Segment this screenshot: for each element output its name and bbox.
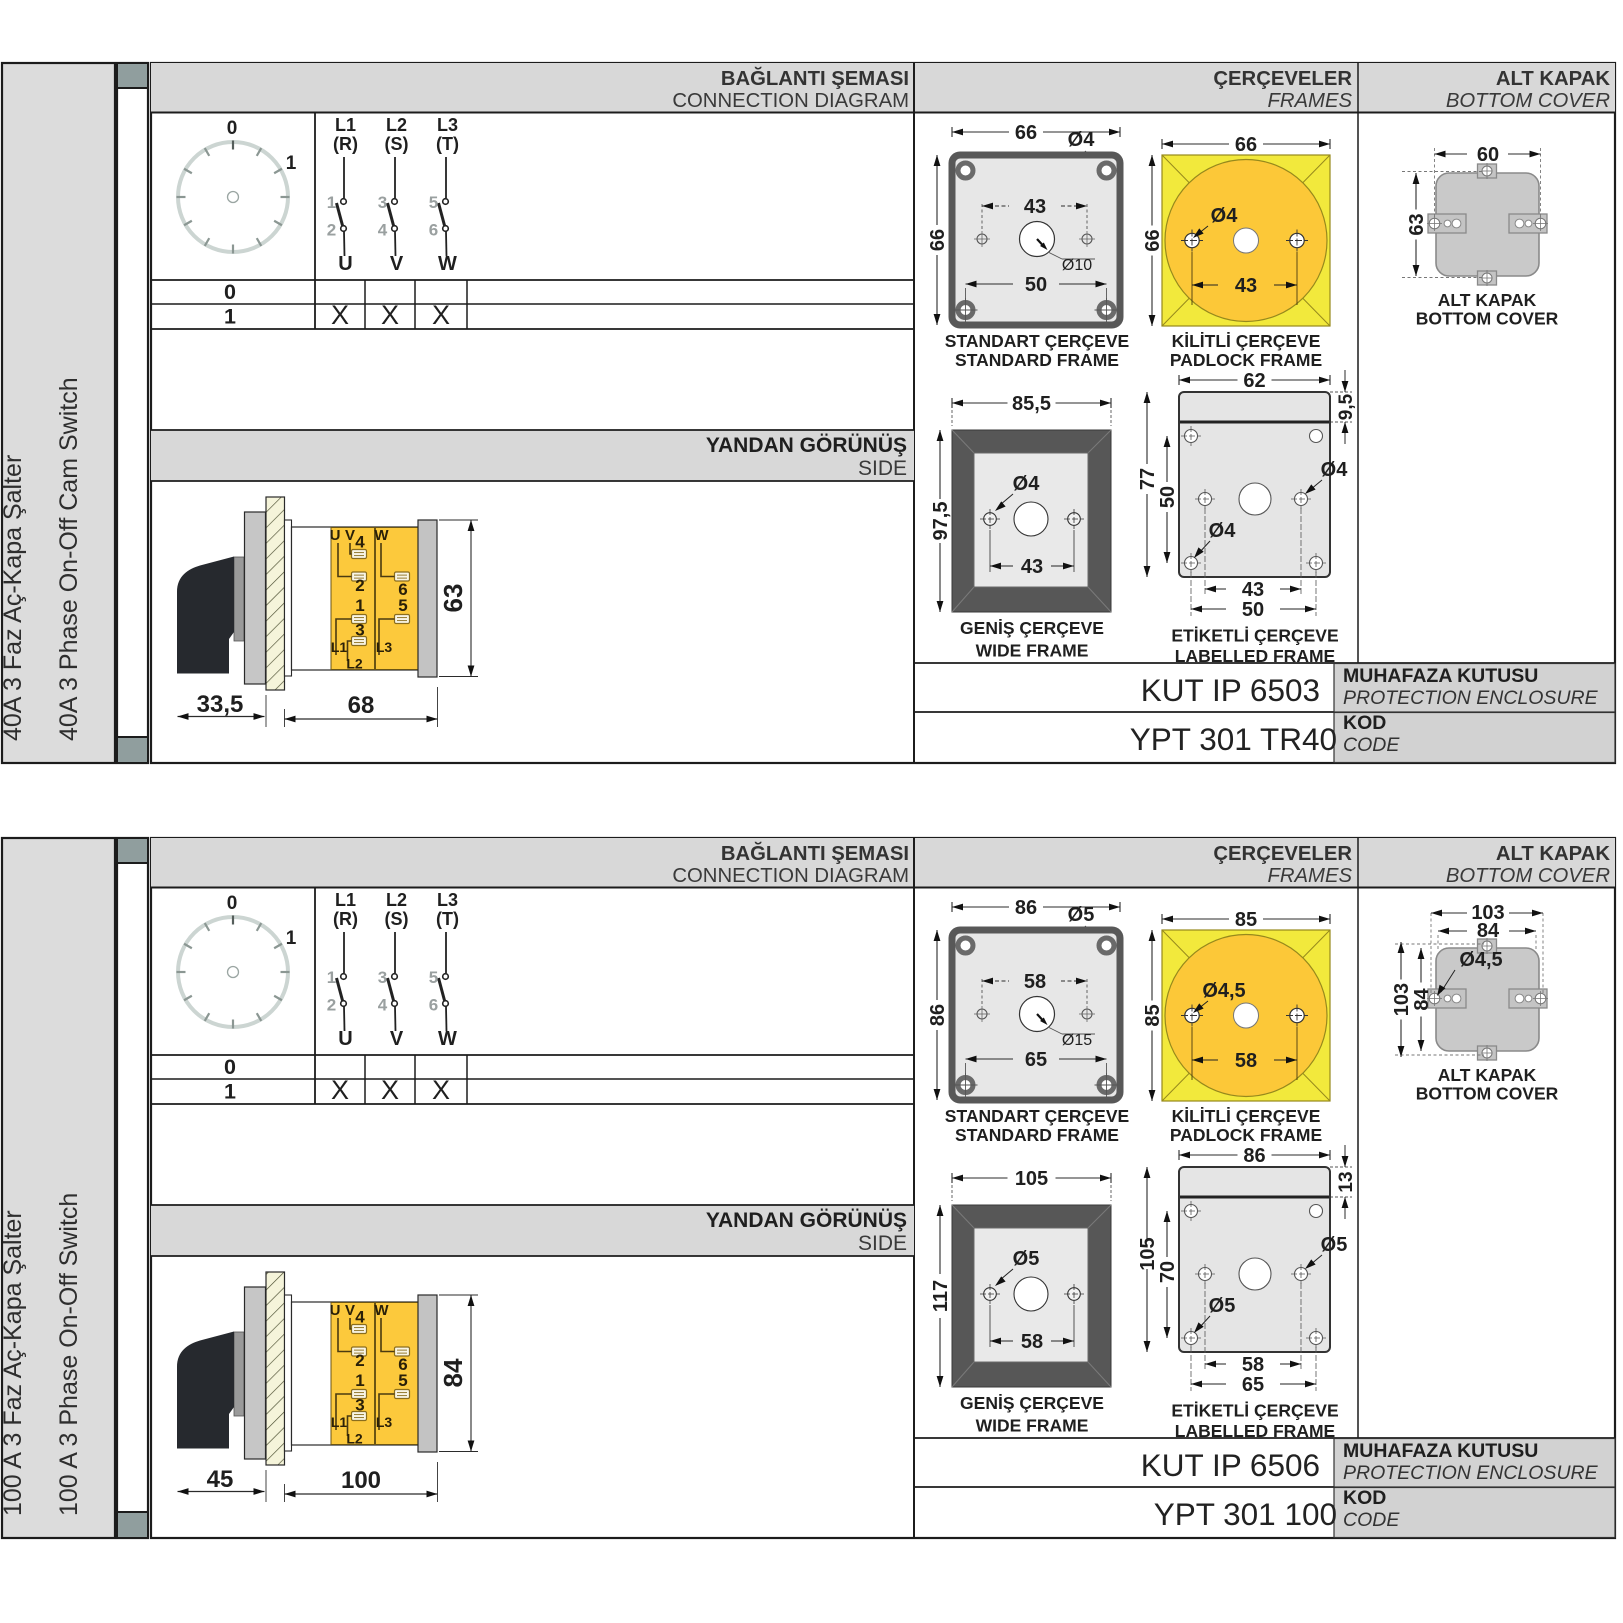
svg-text:62: 62 [1243,370,1265,392]
svg-text:43: 43 [1242,579,1264,601]
svg-text:FRAMES: FRAMES [1267,865,1352,887]
svg-text:50: 50 [1025,274,1047,296]
svg-text:BOTTOM COVER: BOTTOM COVER [1446,865,1610,887]
svg-text:65: 65 [1242,1374,1264,1396]
svg-text:PADLOCK FRAME: PADLOCK FRAME [1170,350,1322,370]
svg-text:33,5: 33,5 [197,691,244,718]
svg-text:BAĞLANTI ŞEMASI: BAĞLANTI ŞEMASI [721,66,909,90]
svg-text:Ø4,5: Ø4,5 [1202,980,1245,1002]
svg-text:SIDE: SIDE [858,457,907,480]
svg-text:Ø5: Ø5 [1321,1234,1348,1256]
svg-text:86: 86 [927,1004,949,1026]
svg-text:ALT KAPAK: ALT KAPAK [1438,290,1537,310]
svg-text:CODE: CODE [1343,1509,1400,1531]
svg-text:WIDE FRAME: WIDE FRAME [976,1416,1089,1436]
svg-text:6: 6 [429,221,438,240]
svg-text:KUT IP 6503: KUT IP 6503 [1141,672,1320,708]
svg-text:Ø4,5: Ø4,5 [1459,949,1502,971]
svg-text:L2: L2 [346,656,363,672]
svg-text:0: 0 [227,118,238,139]
svg-text:L3: L3 [437,890,458,910]
svg-text:PROTECTION ENCLOSURE: PROTECTION ENCLOSURE [1343,1462,1599,1484]
svg-text:50: 50 [1157,486,1179,508]
svg-text:U: U [338,1028,352,1050]
svg-text:1: 1 [286,928,297,949]
svg-text:58: 58 [1024,971,1046,993]
svg-text:5: 5 [429,968,438,987]
svg-text:0: 0 [227,893,238,914]
svg-text:58: 58 [1021,1331,1043,1353]
svg-text:2: 2 [355,576,364,595]
svg-text:W: W [438,1028,457,1050]
svg-text:Ø4: Ø4 [1209,520,1237,542]
svg-text:100 A 3 Faz Aç-Kapa Şalter: 100 A 3 Faz Aç-Kapa Şalter [0,1210,27,1516]
svg-text:X: X [331,300,349,330]
svg-text:3: 3 [355,621,364,640]
svg-text:U: U [338,253,352,275]
svg-text:BOTTOM COVER: BOTTOM COVER [1416,309,1559,329]
svg-text:X: X [381,300,399,330]
svg-text:X: X [432,1075,450,1105]
svg-text:2: 2 [327,221,336,240]
svg-text:STANDART ÇERÇEVE: STANDART ÇERÇEVE [945,331,1129,351]
svg-text:13: 13 [1336,1171,1357,1192]
svg-text:L1: L1 [331,639,348,655]
svg-text:9,5: 9,5 [1336,393,1357,420]
svg-text:BOTTOM COVER: BOTTOM COVER [1416,1084,1559,1104]
svg-text:63: 63 [1406,213,1428,235]
svg-text:(T): (T) [436,909,459,929]
svg-text:L2: L2 [386,115,407,135]
svg-text:(R): (R) [333,134,358,154]
svg-text:FRAMES: FRAMES [1267,90,1352,112]
svg-text:1: 1 [327,193,336,212]
svg-text:PROTECTION ENCLOSURE: PROTECTION ENCLOSURE [1343,687,1599,709]
svg-text:ALT KAPAK: ALT KAPAK [1438,1065,1537,1085]
svg-text:BAĞLANTI ŞEMASI: BAĞLANTI ŞEMASI [721,841,909,865]
svg-text:105: 105 [1015,1168,1048,1190]
svg-text:L1: L1 [331,1414,348,1430]
svg-text:V: V [390,1028,404,1050]
svg-text:4: 4 [355,533,365,552]
svg-text:84: 84 [438,1358,468,1387]
svg-text:50: 50 [1242,599,1264,621]
svg-text:1: 1 [355,596,364,615]
svg-text:3: 3 [378,968,387,987]
svg-text:KİLİTLİ ÇERÇEVE: KİLİTLİ ÇERÇEVE [1172,1106,1321,1126]
svg-text:YANDAN GÖRÜNÜŞ: YANDAN GÖRÜNÜŞ [706,434,907,457]
svg-text:103: 103 [1391,983,1413,1016]
svg-text:40A 3 Phase On-Off Cam Switch: 40A 3 Phase On-Off Cam Switch [55,377,83,741]
svg-text:Ø4: Ø4 [1211,205,1239,227]
svg-text:ETİKETLİ ÇERÇEVE: ETİKETLİ ÇERÇEVE [1171,626,1338,646]
svg-text:66: 66 [1142,229,1164,251]
svg-text:STANDARD FRAME: STANDARD FRAME [955,1125,1119,1145]
svg-text:L2: L2 [386,890,407,910]
svg-text:84: 84 [1477,920,1500,942]
svg-text:X: X [381,1075,399,1105]
svg-text:CONNECTION DIAGRAM: CONNECTION DIAGRAM [672,90,909,112]
svg-text:V: V [390,253,404,275]
svg-text:85: 85 [1235,909,1257,931]
svg-text:1: 1 [355,1371,364,1390]
svg-text:1: 1 [224,1080,236,1104]
svg-text:SIDE: SIDE [858,1232,907,1255]
svg-text:(S): (S) [385,134,409,154]
svg-text:PADLOCK FRAME: PADLOCK FRAME [1170,1125,1322,1145]
svg-text:ALT KAPAK: ALT KAPAK [1496,843,1611,865]
svg-text:L1: L1 [335,890,356,910]
svg-text:65: 65 [1025,1049,1047,1071]
svg-text:63: 63 [438,584,468,613]
svg-text:117: 117 [930,1280,952,1312]
svg-text:60: 60 [1477,144,1499,166]
svg-text:4: 4 [378,221,388,240]
svg-text:(S): (S) [385,909,409,929]
svg-text:Ø5: Ø5 [1209,1295,1236,1317]
svg-text:Ø15: Ø15 [1062,1032,1092,1049]
svg-text:58: 58 [1235,1050,1257,1072]
svg-text:MUHAFAZA KUTUSU: MUHAFAZA KUTUSU [1343,665,1538,687]
svg-text:MUHAFAZA KUTUSU: MUHAFAZA KUTUSU [1343,1440,1538,1462]
svg-text:0: 0 [224,280,236,304]
svg-text:1: 1 [224,305,236,329]
svg-text:4: 4 [355,1308,365,1327]
svg-text:85,5: 85,5 [1012,393,1051,415]
svg-text:YPT 301 100: YPT 301 100 [1154,1496,1337,1532]
svg-text:(T): (T) [436,134,459,154]
svg-text:43: 43 [1024,196,1046,218]
svg-text:L3: L3 [376,1414,393,1430]
svg-text:66: 66 [1235,134,1257,156]
svg-text:YPT 301 TR40: YPT 301 TR40 [1130,721,1337,757]
svg-text:ÇERÇEVELER: ÇERÇEVELER [1213,843,1352,865]
svg-text:Ø4: Ø4 [1321,459,1349,481]
svg-text:Ø10: Ø10 [1062,257,1092,274]
svg-text:L3: L3 [376,639,393,655]
svg-text:GENİŞ ÇERÇEVE: GENİŞ ÇERÇEVE [960,618,1104,638]
svg-text:BOTTOM COVER: BOTTOM COVER [1446,90,1610,112]
svg-text:40A 3 Faz Aç-Kapa Şalter: 40A 3 Faz Aç-Kapa Şalter [0,455,27,741]
svg-text:L1: L1 [335,115,356,135]
svg-text:L3: L3 [437,115,458,135]
svg-text:V: V [345,527,355,544]
svg-text:U: U [330,1302,341,1319]
svg-text:3: 3 [355,1396,364,1415]
svg-text:L2: L2 [346,1431,363,1447]
svg-text:Ø5: Ø5 [1013,1248,1040,1270]
svg-text:45: 45 [207,1466,234,1493]
svg-text:KİLİTLİ ÇERÇEVE: KİLİTLİ ÇERÇEVE [1172,331,1321,351]
svg-text:0: 0 [224,1055,236,1079]
svg-text:ALT KAPAK: ALT KAPAK [1496,68,1611,90]
svg-text:5: 5 [398,1371,407,1390]
svg-text:4: 4 [378,996,388,1015]
svg-text:86: 86 [1015,897,1037,919]
svg-text:43: 43 [1235,275,1257,297]
svg-text:STANDART ÇERÇEVE: STANDART ÇERÇEVE [945,1106,1129,1126]
svg-text:58: 58 [1242,1354,1264,1376]
svg-text:85: 85 [1142,1004,1164,1026]
svg-text:W: W [438,253,457,275]
svg-text:43: 43 [1021,556,1043,578]
svg-text:KOD: KOD [1343,1487,1386,1509]
svg-text:W: W [374,1302,389,1319]
svg-text:5: 5 [398,596,407,615]
svg-text:77: 77 [1137,468,1159,490]
svg-text:68: 68 [348,692,375,719]
svg-text:Ø5: Ø5 [1068,904,1095,926]
svg-text:70: 70 [1157,1261,1179,1283]
svg-text:2: 2 [355,1351,364,1370]
svg-text:5: 5 [429,193,438,212]
svg-text:105: 105 [1137,1237,1159,1270]
svg-text:WIDE FRAME: WIDE FRAME [976,641,1089,661]
svg-text:86: 86 [1243,1145,1265,1167]
svg-text:ÇERÇEVELER: ÇERÇEVELER [1213,68,1352,90]
svg-text:66: 66 [927,229,949,251]
svg-text:CONNECTION DIAGRAM: CONNECTION DIAGRAM [672,865,909,887]
svg-text:6: 6 [429,996,438,1015]
svg-text:GENİŞ ÇERÇEVE: GENİŞ ÇERÇEVE [960,1393,1104,1413]
svg-text:CODE: CODE [1343,734,1400,756]
svg-text:X: X [432,300,450,330]
svg-text:84: 84 [1411,988,1433,1011]
svg-text:3: 3 [378,193,387,212]
svg-text:100: 100 [341,1467,381,1494]
svg-text:100 A 3 Phase On-Off Switch: 100 A 3 Phase On-Off Switch [55,1193,83,1516]
svg-text:(R): (R) [333,909,358,929]
svg-text:YANDAN GÖRÜNÜŞ: YANDAN GÖRÜNÜŞ [706,1209,907,1232]
svg-text:KOD: KOD [1343,712,1386,734]
svg-text:U: U [330,527,341,544]
svg-text:V: V [345,1302,355,1319]
svg-text:1: 1 [327,968,336,987]
svg-text:66: 66 [1015,122,1037,144]
svg-text:Ø4: Ø4 [1068,129,1096,151]
svg-text:X: X [331,1075,349,1105]
svg-text:1: 1 [286,153,297,174]
svg-text:Ø4: Ø4 [1013,473,1041,495]
svg-text:97,5: 97,5 [930,502,952,541]
svg-text:KUT IP 6506: KUT IP 6506 [1141,1447,1320,1483]
svg-text:ETİKETLİ ÇERÇEVE: ETİKETLİ ÇERÇEVE [1171,1401,1338,1421]
svg-text:STANDARD FRAME: STANDARD FRAME [955,350,1119,370]
svg-text:2: 2 [327,996,336,1015]
svg-text:W: W [374,527,389,544]
